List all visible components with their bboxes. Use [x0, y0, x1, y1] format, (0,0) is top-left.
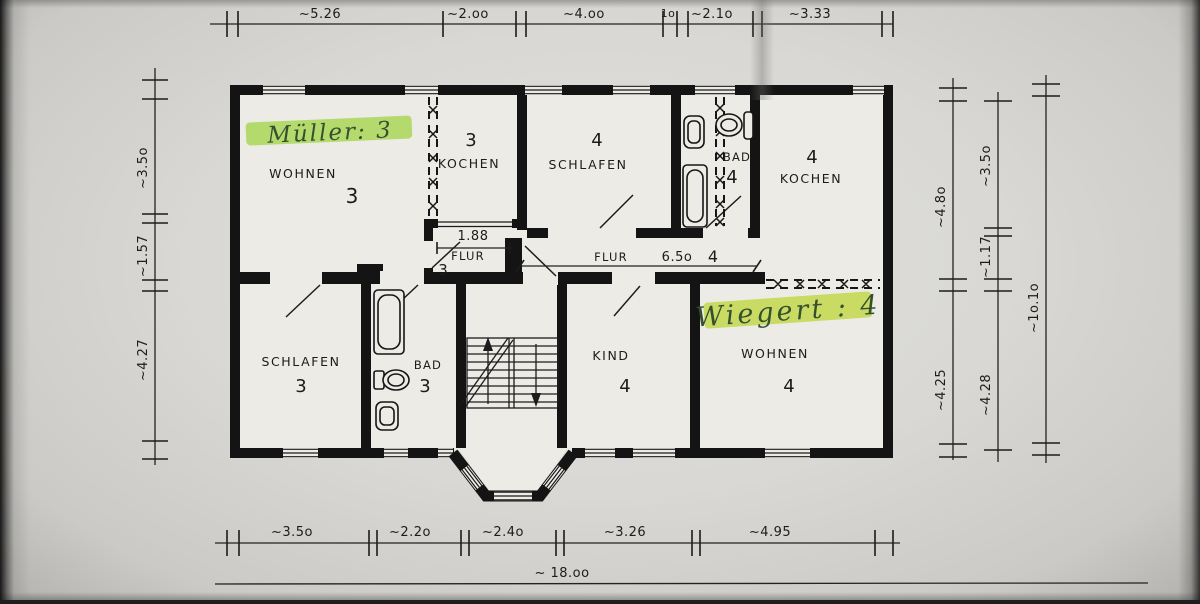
dim-label: ~2.oo — [447, 7, 489, 22]
door-opening-kochen3 — [438, 218, 512, 229]
room-number: 3 — [295, 376, 306, 397]
room-name: FLUR — [451, 249, 485, 263]
dim-label: ~3.5o — [979, 145, 994, 187]
room-name: KOCHEN — [780, 171, 842, 186]
room-name: KIND — [592, 348, 629, 363]
building — [230, 85, 893, 500]
dim-label: ~4.95 — [749, 525, 791, 540]
room-number: 3 — [419, 376, 430, 397]
window — [765, 448, 810, 458]
window — [384, 448, 408, 458]
dim-label: ~3.5o — [271, 525, 313, 540]
room-name: SCHLAFEN — [261, 354, 340, 369]
dim-label: ~2.2o — [389, 525, 431, 540]
dim-label: ~4.28 — [979, 374, 994, 416]
dim-label: ~5.26 — [299, 7, 341, 22]
dim-label: ~1.57 — [136, 235, 151, 277]
chimney-block — [357, 264, 383, 284]
dim-label: 1o — [661, 7, 676, 20]
room-number: 4 — [783, 376, 794, 397]
dim-label: ~4.27 — [136, 339, 151, 381]
room-name: WOHNEN — [741, 346, 809, 361]
dim-label: ~3.5o — [136, 147, 151, 189]
dim-label: 1.88 — [458, 229, 489, 244]
toilet-cistern — [744, 112, 753, 139]
dim-label: ~2.1o — [691, 7, 733, 22]
window — [695, 85, 735, 95]
room-name: FLUR — [594, 250, 628, 264]
dim-label: ~ 18.oo — [534, 566, 589, 581]
room-number: 4 — [619, 376, 630, 397]
dim-label: ~4.oo — [563, 7, 605, 22]
dim-label: ~1o.1o — [1027, 283, 1042, 333]
dimension-bottom: ~3.5o ~2.2o ~2.4o ~3.26 ~4.95 — [215, 525, 900, 556]
dim-label: ~3.26 — [604, 525, 646, 540]
dim-label: ~2.4o — [482, 525, 524, 540]
dimension-total: ~ 18.oo — [215, 566, 1148, 584]
room-number: 3 — [346, 184, 359, 208]
room-number: 4 — [726, 167, 737, 188]
photographed-floor-plan: ~5.26 ~2.oo ~4.oo 1o ~2.1o ~3.33 ~3.5o ~… — [0, 0, 1200, 600]
dim-label: ~4.8o — [934, 186, 949, 228]
window — [283, 448, 318, 458]
bay-window-glass-bottom — [494, 492, 532, 500]
dim-label: ~4.25 — [934, 369, 949, 411]
dim-label: 6.5o — [662, 250, 693, 265]
window — [525, 85, 562, 95]
window — [613, 85, 650, 95]
room-name: WOHNEN — [269, 166, 337, 181]
room-name: KOCHEN — [438, 156, 500, 171]
dimension-right-outer: ~1o.1o — [1027, 75, 1060, 463]
room-name: BAD — [414, 358, 442, 372]
floor-plan-svg: ~5.26 ~2.oo ~4.oo 1o ~2.1o ~3.33 ~3.5o ~… — [0, 0, 1200, 600]
dimension-right-middle: ~3.5o ~1.17 ~4.28 — [979, 92, 1012, 462]
paper-crease — [750, 0, 774, 100]
room-name: SCHLAFEN — [548, 157, 627, 172]
dim-label: ~1.17 — [979, 236, 994, 278]
room-number: 4 — [591, 130, 602, 151]
window — [633, 448, 675, 458]
window — [853, 85, 884, 95]
room-number: 3 — [465, 130, 476, 151]
dim-label: ~3.33 — [789, 7, 831, 22]
room-number: 4 — [708, 247, 718, 266]
window — [405, 85, 438, 95]
dimension-left: ~3.5o ~1.57 ~4.27 — [136, 68, 168, 465]
handwritten-name: Müller: 3 — [266, 117, 393, 148]
room-name: BAD — [723, 150, 751, 164]
room-number: 3 — [438, 261, 448, 279]
dimension-right-inner: ~4.8o ~4.25 — [934, 78, 967, 460]
room-number: 4 — [806, 147, 817, 168]
dimension-top: ~5.26 ~2.oo ~4.oo 1o ~2.1o ~3.33 — [210, 7, 893, 37]
window — [263, 85, 305, 95]
window — [585, 448, 615, 458]
